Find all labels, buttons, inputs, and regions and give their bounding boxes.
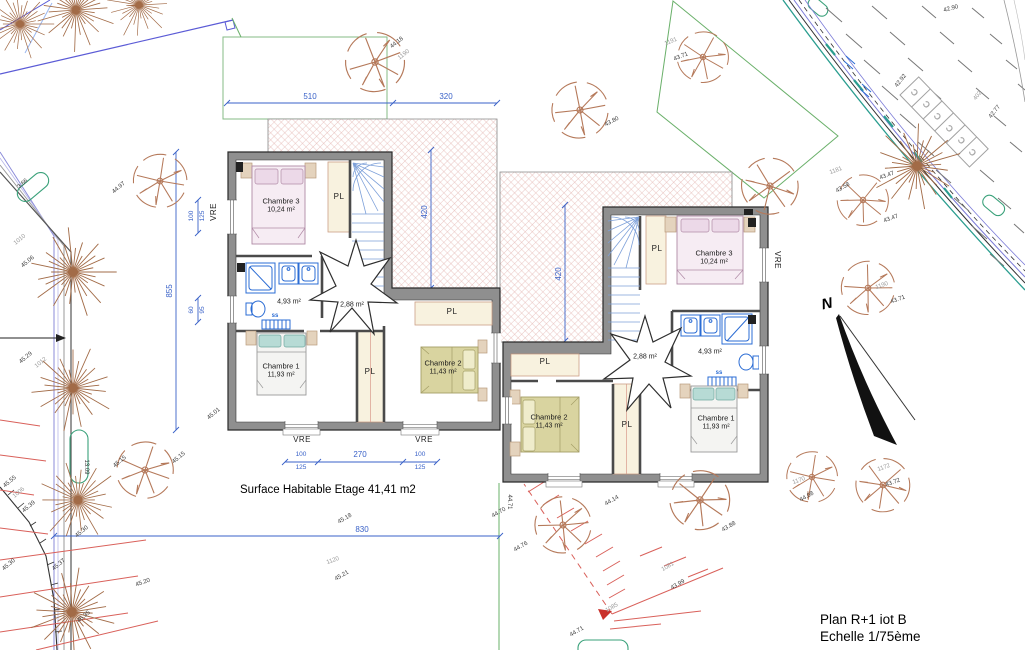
closet-label: PL	[622, 421, 633, 429]
room-name: Chambre 2	[530, 413, 567, 421]
closet-label: PL	[365, 368, 376, 376]
annotation-label: 100	[296, 452, 307, 459]
annotation-label: 125	[415, 465, 426, 472]
plan-scale: Echelle 1/75ème	[820, 629, 921, 646]
room-name: Chambre 3	[695, 249, 732, 257]
closet-label: PL	[334, 193, 345, 201]
dim-270: 270	[353, 451, 366, 459]
road	[783, 0, 1025, 290]
window-label-vre: VRE	[415, 436, 433, 444]
annotation-label: 100	[189, 211, 196, 222]
room-area: 11,43 m²	[429, 369, 456, 376]
window-label-vre: VRE	[773, 251, 781, 269]
north-arrow	[836, 314, 915, 445]
closet-label: PL	[447, 308, 458, 316]
room-name: Chambre 1	[262, 362, 299, 370]
room-area: 4,93 m²	[698, 349, 722, 356]
dim-855: 855	[166, 284, 174, 297]
title-block: Plan R+1 iot B Echelle 1/75ème	[820, 612, 921, 646]
plan-drawing	[0, 0, 1025, 650]
room-area: 2,88 m²	[340, 302, 364, 309]
room-name: Chambre 3	[262, 197, 299, 205]
road-hatch-dashes	[826, 6, 1025, 266]
room-name: Chambre 2	[424, 359, 461, 367]
room-area: 10,24 m²	[700, 259, 728, 266]
dim-420-left: 420	[421, 205, 429, 218]
dim-830: 830	[355, 526, 368, 534]
annotation-label: 44.71	[506, 494, 512, 509]
room-area: 11,93 m²	[702, 424, 729, 431]
window-label-vre: VRE	[293, 436, 311, 444]
annotation-label: 95	[200, 306, 207, 313]
closet-label: PL	[652, 245, 663, 253]
plan-title: Plan R+1 iot B	[820, 612, 921, 629]
annotation-label: 125	[200, 211, 207, 222]
window-label-vre: VRE	[210, 203, 218, 221]
dim-420-right: 420	[555, 267, 563, 280]
surface-note: Surface Habitable Etage 41,41 m2	[240, 484, 416, 496]
floor-plan-sheet: 5103204204208558302701001251001251001256…	[0, 0, 1025, 650]
towel-radiator-label: ss	[716, 370, 723, 376]
room-area: 4,93 m²	[277, 299, 301, 306]
annotation-label: 125	[296, 465, 307, 472]
dim-510: 510	[303, 93, 316, 101]
room-area: 11,43 m²	[535, 423, 562, 430]
room-area: 2,88 m²	[633, 354, 657, 361]
annotation-label: 100	[415, 452, 426, 459]
closet-label: PL	[540, 358, 551, 366]
dim-320: 320	[439, 93, 452, 101]
room-name: Chambre 1	[697, 414, 734, 422]
annotation-label: 60	[189, 306, 196, 313]
room-area: 10,24 m²	[267, 207, 295, 214]
site-boundaries	[0, 0, 235, 650]
towel-radiator-label: ss	[272, 313, 279, 319]
annotation-label: 13.09	[83, 459, 89, 474]
room-area: 11,93 m²	[267, 372, 294, 379]
